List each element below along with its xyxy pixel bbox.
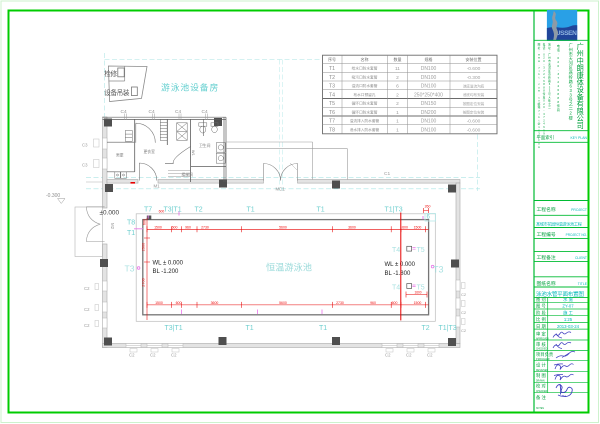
svg-text:-0.600: -0.600 <box>467 119 481 125</box>
svg-text:P.MANAGER: P.MANAGER <box>536 358 550 361</box>
svg-text:ZY-07: ZY-07 <box>562 304 574 309</box>
svg-text:-0.600: -0.600 <box>467 128 481 134</box>
svg-text:C2: C2 <box>461 310 467 315</box>
svg-text:DESIGNER: DESIGNER <box>536 370 548 372</box>
svg-text:工程名称: 工程名称 <box>537 206 556 213</box>
svg-text:按图定位安装: 按图定位安装 <box>463 101 485 106</box>
svg-text:工程编号: 工程编号 <box>537 231 556 238</box>
svg-text:T1: T1 <box>329 66 335 72</box>
svg-text:泄水排入防水套管: 泄水排入防水套管 <box>350 127 380 132</box>
svg-text:地址:广州市天河区燕岭路633号A栋之二: 地址:广州市天河区燕岭路633号A栋之二 <box>548 43 551 110</box>
svg-text:1: 1 <box>396 128 399 134</box>
svg-text:USSEN: USSEN <box>556 30 577 37</box>
svg-text:C2: C2 <box>150 353 156 358</box>
svg-text:CHECKED: CHECKED <box>536 349 548 351</box>
svg-text:WL ± 0.000: WL ± 0.000 <box>153 261 184 267</box>
svg-text:DN100: DN100 <box>421 66 437 72</box>
svg-text:1500: 1500 <box>414 301 422 305</box>
svg-text:±0.000: ±0.000 <box>100 210 120 217</box>
svg-text:T7: T7 <box>144 207 152 214</box>
svg-text:DN200: DN200 <box>421 110 437 116</box>
svg-text:序号: 序号 <box>328 56 336 62</box>
svg-text:布水口预留孔: 布水口预留孔 <box>353 92 375 97</box>
svg-text:水 施: 水 施 <box>563 296 573 303</box>
svg-text:960: 960 <box>370 301 376 305</box>
svg-text:图 别: 图 别 <box>536 296 546 303</box>
svg-text:T4: T4 <box>392 247 400 254</box>
svg-text:APPROVED: APPROVED <box>536 337 549 340</box>
svg-text:T1|T3: T1|T3 <box>439 325 457 332</box>
svg-text:T5: T5 <box>329 101 335 107</box>
svg-text:规格: 规格 <box>425 56 433 62</box>
svg-text:某城市花园恒温游泳池工程: 某城市花园恒温游泳池工程 <box>536 221 582 227</box>
svg-text:T3: T3 <box>125 264 135 274</box>
svg-text:T3|T1: T3|T1 <box>164 207 182 214</box>
svg-text:2: 2 <box>396 93 399 99</box>
svg-text:图纸名称: 图纸名称 <box>537 280 556 287</box>
svg-text:DN100: DN100 <box>421 84 437 90</box>
svg-text:-0.300: -0.300 <box>467 75 481 81</box>
svg-text:1:25: 1:25 <box>564 317 573 322</box>
svg-text:C2: C2 <box>84 323 90 328</box>
svg-text:检修: 检修 <box>104 69 117 78</box>
svg-text:广州中朗康体设备有限公司: 广州中朗康体设备有限公司 <box>577 42 584 130</box>
svg-text:校 对: 校 对 <box>536 383 546 390</box>
svg-text:KEY PLAN: KEY PLAN <box>570 136 587 140</box>
svg-text:安装位置: 安装位置 <box>466 56 482 62</box>
svg-text:600: 600 <box>172 226 178 230</box>
svg-text:C2: C2 <box>385 353 391 358</box>
svg-text:T1|T3: T1|T3 <box>385 207 403 214</box>
svg-text:DRAWN: DRAWN <box>536 380 545 383</box>
svg-text:数量: 数量 <box>394 56 402 62</box>
svg-text:DN100: DN100 <box>421 128 437 134</box>
svg-text:制 图: 制 图 <box>536 372 546 379</box>
svg-text:5600: 5600 <box>279 226 287 230</box>
svg-text:溢流口防水套管: 溢流口防水套管 <box>352 83 378 88</box>
svg-text:项目负责: 项目负责 <box>536 351 554 358</box>
svg-text:260: 260 <box>425 205 431 209</box>
svg-text:施 工: 施 工 <box>563 309 573 316</box>
svg-text:2: 2 <box>396 75 399 81</box>
svg-text:工程备注: 工程备注 <box>537 254 556 261</box>
svg-text:PROJECT NO.: PROJECT NO. <box>566 233 587 237</box>
svg-text:T1: T1 <box>127 230 135 237</box>
svg-text:C2: C2 <box>461 328 467 333</box>
svg-text:2730: 2730 <box>201 226 209 230</box>
svg-text:C4: C4 <box>121 109 127 115</box>
svg-text:TITLE: TITLE <box>578 282 588 286</box>
svg-text:3600: 3600 <box>211 301 219 305</box>
svg-text:BL -1.200: BL -1.200 <box>153 269 179 275</box>
svg-text:C4: C4 <box>175 109 181 115</box>
svg-text:T7: T7 <box>329 119 335 125</box>
svg-text:2700: 2700 <box>141 278 145 286</box>
svg-text:2013-03-24: 2013-03-24 <box>557 324 580 329</box>
svg-text:设备吊装: 设备吊装 <box>104 88 130 97</box>
svg-text:C1: C1 <box>384 171 390 177</box>
svg-text:1: 1 <box>396 110 399 116</box>
svg-text:更衣室: 更衣室 <box>144 149 156 154</box>
svg-text:T4: T4 <box>392 285 400 292</box>
svg-text:审 核: 审 核 <box>536 341 546 348</box>
svg-text:C2: C2 <box>406 353 412 358</box>
svg-text:DN150: DN150 <box>421 101 437 107</box>
svg-text:5600: 5600 <box>279 301 287 305</box>
svg-text:C4: C4 <box>149 109 155 115</box>
svg-text:C3: C3 <box>82 143 88 148</box>
svg-text:设 计: 设 计 <box>536 362 546 369</box>
svg-text:1500: 1500 <box>154 226 162 230</box>
svg-text:卫生间: 卫生间 <box>199 143 211 148</box>
svg-text:WL ± 0.000: WL ± 0.000 <box>385 262 416 268</box>
svg-text:C3: C3 <box>82 163 88 168</box>
svg-text:DN100: DN100 <box>421 75 437 81</box>
svg-text:T3: T3 <box>329 84 335 90</box>
svg-text:男更: 男更 <box>116 153 124 158</box>
svg-text:C4: C4 <box>202 109 208 115</box>
svg-text:CLIENT: CLIENT <box>575 256 587 260</box>
svg-text:1500: 1500 <box>414 226 422 230</box>
svg-text:吸污口防水套管: 吸污口防水套管 <box>352 75 378 80</box>
svg-text:M1: M1 <box>154 184 161 189</box>
svg-text:2500: 2500 <box>141 243 145 251</box>
svg-text:池底溢流沟底: 池底溢流沟底 <box>463 83 485 88</box>
svg-text:恒温游泳池: 恒温游泳池 <box>266 262 312 273</box>
svg-text:T6: T6 <box>329 110 335 116</box>
svg-text:楼梯间: 楼梯间 <box>182 172 194 177</box>
svg-text:T8: T8 <box>127 220 135 227</box>
svg-text:T1: T1 <box>246 325 254 332</box>
svg-text:NOTES: NOTES <box>536 408 544 410</box>
svg-text:1: 1 <box>396 119 399 125</box>
svg-text:960: 960 <box>185 226 191 230</box>
svg-text:T1: T1 <box>319 325 327 332</box>
svg-text:PROJECT: PROJECT <box>571 208 587 212</box>
svg-text:6: 6 <box>396 84 399 90</box>
svg-text:DN100: DN100 <box>421 119 437 125</box>
svg-text:W1: W1 <box>191 150 195 156</box>
svg-text:C2: C2 <box>129 353 135 358</box>
svg-text:-0.600: -0.600 <box>467 66 481 72</box>
svg-text:给水口防水套管: 给水口防水套管 <box>352 66 378 71</box>
svg-text:循环口防水套管: 循环口防水套管 <box>352 110 378 115</box>
svg-text:T8: T8 <box>329 128 335 134</box>
svg-text:MC1: MC1 <box>276 186 286 191</box>
svg-text:溢流排入防水套管: 溢流排入防水套管 <box>350 118 380 123</box>
svg-text:T3|T1: T3|T1 <box>165 325 183 332</box>
svg-text:2: 2 <box>396 101 399 107</box>
svg-text:T3: T3 <box>433 265 444 275</box>
svg-text:M2: M2 <box>110 223 115 230</box>
svg-text:T5: T5 <box>417 285 425 292</box>
svg-text:2730: 2730 <box>336 301 344 305</box>
svg-text:3600: 3600 <box>348 226 356 230</box>
svg-text:按图定位安装: 按图定位安装 <box>463 110 485 115</box>
svg-text:BL -1.800: BL -1.800 <box>385 271 411 277</box>
svg-text:T5: T5 <box>417 247 425 254</box>
svg-text:备 注: 备 注 <box>536 394 546 401</box>
svg-text:CHECKER: CHECKER <box>536 391 548 393</box>
svg-text:池底均布安装: 池底均布安装 <box>463 92 485 97</box>
svg-text:1500: 1500 <box>155 301 163 305</box>
svg-text:-0.300: -0.300 <box>46 193 60 199</box>
svg-text:600: 600 <box>176 301 182 305</box>
svg-text:11: 11 <box>395 66 400 72</box>
svg-text:250*250*400: 250*250*400 <box>414 93 443 99</box>
svg-text:T2: T2 <box>422 325 430 332</box>
svg-text:T4: T4 <box>329 93 335 99</box>
svg-text:C2: C2 <box>171 353 177 358</box>
svg-text:阶 段: 阶 段 <box>536 309 546 316</box>
svg-text:600: 600 <box>392 301 398 305</box>
svg-text:C2: C2 <box>84 286 90 291</box>
svg-text:T2: T2 <box>329 75 335 81</box>
svg-text:T2: T2 <box>195 207 203 214</box>
svg-text:T1: T1 <box>317 207 325 214</box>
svg-text:C2: C2 <box>427 353 433 358</box>
svg-text:600: 600 <box>402 226 408 230</box>
svg-text:600: 600 <box>142 219 146 225</box>
svg-text:审 定: 审 定 <box>536 331 546 338</box>
svg-text:名称: 名称 <box>361 56 369 62</box>
svg-text:循环口防水套管: 循环口防水套管 <box>352 101 378 106</box>
svg-text:平面索引: 平面索引 <box>537 134 555 141</box>
svg-text:C2: C2 <box>84 307 90 312</box>
svg-text:比 例: 比 例 <box>536 316 546 323</box>
svg-text:游泳池设备房: 游泳池设备房 <box>161 82 219 93</box>
svg-text:T1: T1 <box>247 207 255 214</box>
svg-text:C2: C2 <box>461 292 467 297</box>
